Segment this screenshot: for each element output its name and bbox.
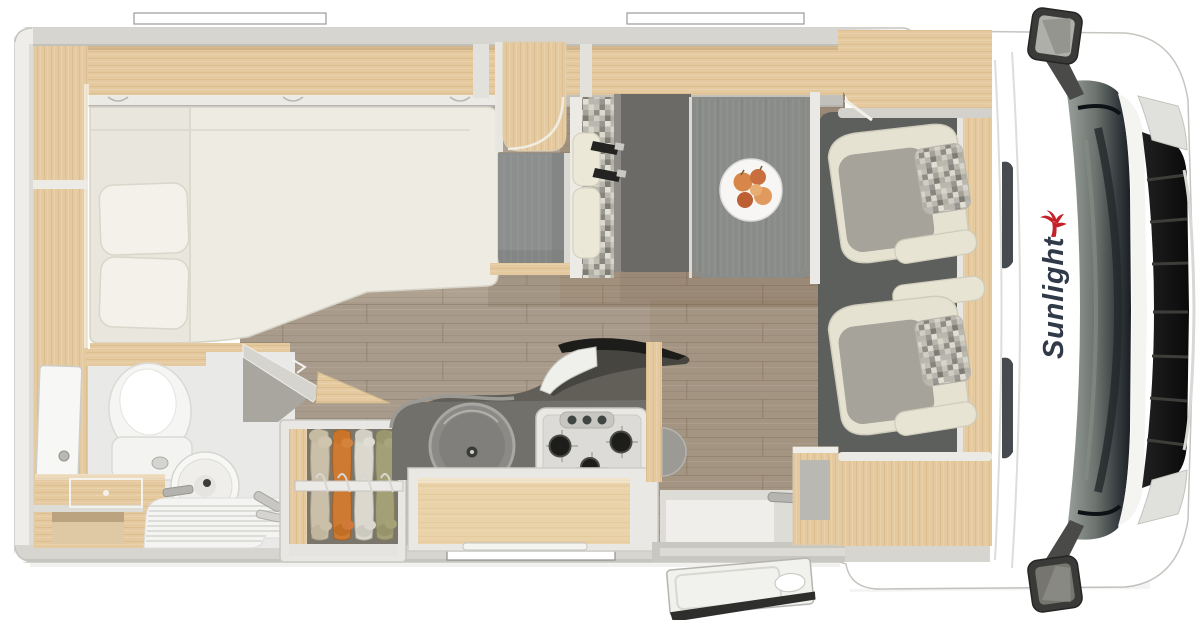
- svg-text:Sunlight: Sunlight: [1038, 236, 1070, 359]
